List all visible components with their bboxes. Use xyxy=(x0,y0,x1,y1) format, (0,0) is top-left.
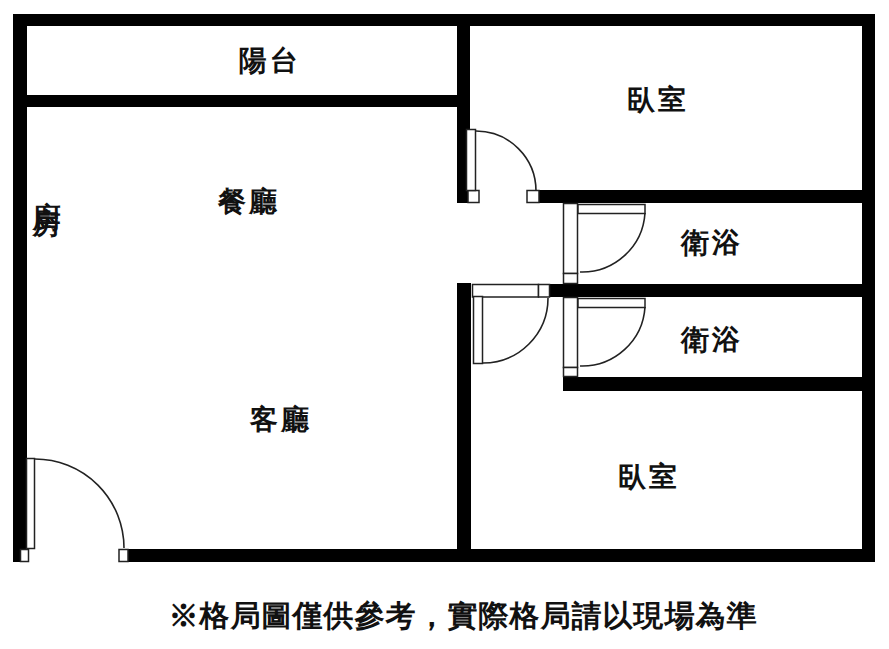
bedroom-top-door-jamb-left xyxy=(468,191,479,203)
entry-door-jamb-right xyxy=(119,550,128,562)
living-room-label: 客廳 xyxy=(250,406,312,434)
bedroom-top-door-jamb-right xyxy=(527,191,539,203)
bathroom-lower-door-arc xyxy=(580,307,645,366)
bathroom-lower-door-frame xyxy=(564,298,578,368)
hall-door-leaf xyxy=(474,297,483,364)
bathroom-lower-door-leaf xyxy=(578,299,645,308)
bathroom-upper-label: 衛浴 xyxy=(681,229,743,257)
bedroom-top-label: 臥室 xyxy=(627,86,689,114)
bathroom-lower-door-sill xyxy=(564,368,578,377)
bedroom-bottom-label: 臥室 xyxy=(618,463,680,491)
dining-label: 餐廳 xyxy=(218,188,280,216)
bedroom-top-door-arc xyxy=(476,131,536,191)
bathroom-upper-door-leaf xyxy=(578,205,645,214)
bedroom-top-door-leaf xyxy=(467,130,476,191)
balcony-label: 陽台 xyxy=(239,47,301,75)
entry-door-jamb-left xyxy=(21,550,29,562)
hall-door-opening xyxy=(473,285,539,298)
disclaimer-text: ※格局圖僅供參考，實際格局請以現場為準 xyxy=(169,596,758,637)
entry-door-arc xyxy=(35,459,124,548)
kitchen-label: 廚房 xyxy=(32,178,60,190)
door-symbols-layer xyxy=(0,0,889,649)
bathroom-upper-door-frame xyxy=(564,204,578,274)
bathroom-upper-door-arc xyxy=(580,213,645,272)
hall-door-jamb-right xyxy=(539,285,550,298)
hall-door-arc xyxy=(483,298,548,363)
bathroom-lower-label: 衛浴 xyxy=(681,326,743,354)
floor-plan: 陽台 臥室 廚房 餐廳 衛浴 衛浴 客廳 臥室 ※格局圖僅供參考，實際格局請以現… xyxy=(0,0,889,649)
bathroom-upper-door-sill xyxy=(564,274,578,284)
entry-door-leaf xyxy=(27,459,35,549)
